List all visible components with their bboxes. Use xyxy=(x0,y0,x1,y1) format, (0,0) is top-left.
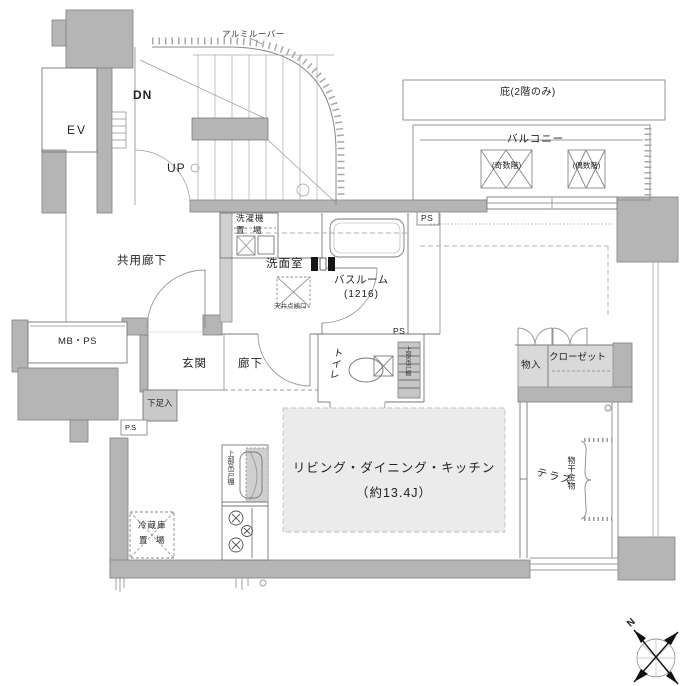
wall-ev-stub xyxy=(52,20,66,46)
staircase xyxy=(112,38,341,205)
wall-south xyxy=(110,560,530,578)
label-bathroom-size: (1216) xyxy=(344,290,379,300)
label-ldk-size: （約13.4J） xyxy=(244,487,544,500)
washroom-door-arc xyxy=(258,334,310,386)
label-ldk: リビング・ダイニング・キッチン xyxy=(244,462,544,475)
label-washroom: 洗面室 xyxy=(266,259,304,271)
slim-cabinet xyxy=(220,213,232,322)
label-even-floors: (偶数階) xyxy=(568,162,605,170)
label-washer-2: 置 場 xyxy=(236,226,264,235)
front-door-arc xyxy=(147,270,205,328)
wall-mbps-mass xyxy=(18,368,118,420)
label-dn: DN xyxy=(133,89,152,101)
label-common-corridor: 共用廊下 xyxy=(117,256,167,268)
wall-west xyxy=(110,438,128,578)
wall-ev-bar xyxy=(97,68,112,213)
label-closet: クローゼット xyxy=(549,353,606,363)
floor-plan: EV DN UP アルミルーバー 庇(2階のみ) バルコニー (奇数階) (偶数… xyxy=(0,0,686,686)
label-ev: EV xyxy=(63,124,91,136)
label-fridge-2: 置 場 xyxy=(139,536,167,545)
label-ps-top: PS xyxy=(421,214,433,223)
column-southeast xyxy=(618,537,675,580)
label-ps-box: P.S xyxy=(125,424,136,432)
label-ps-mid: PS xyxy=(393,327,405,336)
column-northeast xyxy=(617,197,678,262)
wall-north xyxy=(190,200,487,212)
label-storage: 物入 xyxy=(521,361,541,371)
door-stopper xyxy=(605,405,611,411)
toilet-bowl xyxy=(349,358,383,382)
label-odd-floors: (奇数階) xyxy=(481,162,532,170)
label-balcony: バルコニー xyxy=(507,134,564,145)
stair-door-arc xyxy=(135,150,190,205)
label-washer-1: 洗濯機 xyxy=(236,214,265,223)
label-fridge-1: 冷蔵庫 xyxy=(138,521,167,530)
bathtub xyxy=(330,219,404,257)
label-hallway: 廊下 xyxy=(238,359,263,371)
wall-mbps-stub xyxy=(12,320,28,372)
label-eaves: 庇(2階のみ) xyxy=(500,88,556,98)
wall-closet-south xyxy=(518,387,632,402)
label-aluminum-louver: アルミルーバー xyxy=(222,30,285,39)
label-entrance: 玄関 xyxy=(182,359,207,371)
drying-fixture-brace xyxy=(581,441,591,519)
compass-rose xyxy=(634,630,678,684)
label-bathroom: バスルーム xyxy=(334,275,389,286)
wall-ev-bottom xyxy=(42,150,66,213)
wall-pier-entry xyxy=(203,315,222,335)
wall-genkan-west xyxy=(140,335,148,392)
label-upper-cabinet-kitchen: 上部吊戸棚 xyxy=(227,450,234,485)
hatch-ladder xyxy=(112,112,126,148)
wall-mbps-leg xyxy=(70,420,88,442)
stair-landing-block xyxy=(192,118,268,140)
ev-shaft xyxy=(42,68,97,152)
switch-panel xyxy=(328,257,335,271)
label-upper-cabinet-toilet: 上部吊戸棚 xyxy=(404,346,410,376)
switch-panel xyxy=(311,257,318,271)
washer-unit xyxy=(258,236,274,254)
label-up: UP xyxy=(167,162,186,174)
eaves-outline xyxy=(403,80,665,120)
wall-ev-top xyxy=(66,10,133,68)
utility-ticks xyxy=(116,578,266,592)
label-shoe-box: 下足入 xyxy=(147,399,173,408)
label-ceiling-hatch: 天井点検口 xyxy=(274,304,307,311)
label-drying-fixture: 物干金物 xyxy=(567,456,575,490)
label-mb-ps: MB・PS xyxy=(50,337,105,347)
